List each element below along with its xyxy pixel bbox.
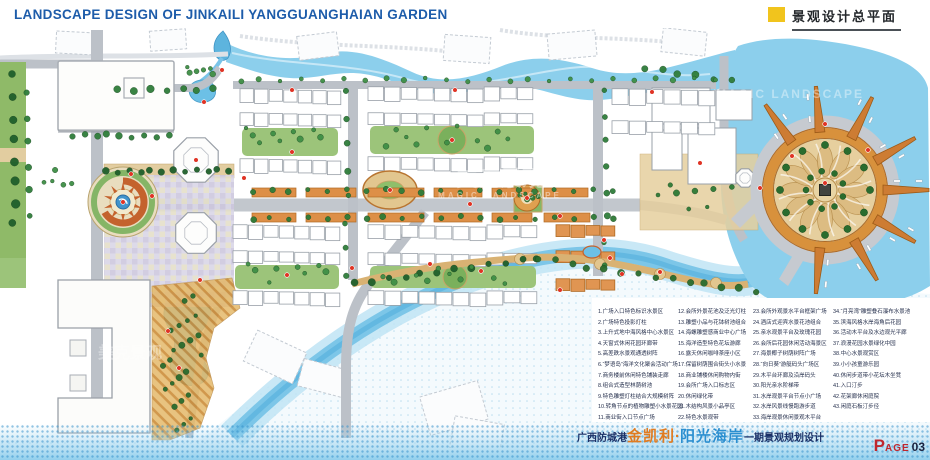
legend-item: 10.转角节点的植物雕塑小水景花园 [598,402,678,413]
legend-item: 27.海景椰子树荫树阵广场 [753,349,833,360]
legend-item: 25.亲水观景平台及玫瑰花园 [753,328,833,339]
legend-item: 29.木平台环廊及沿岸码头 [753,371,833,382]
yellow-accent-square-icon [768,7,785,22]
legend-item: 24.酒店式迎宾水景花池组合 [753,318,833,329]
legend-item: 3.上升式地中海风格中心水景区 [598,328,678,339]
project-location: 广西防城港 [577,429,627,444]
legend-column-2: 12.会所外景花池及泛光灯柱13.雕塑小品与花钵树池组合14.海螺雕塑感商业中心… [678,307,753,424]
legend-item: 31.水岸观景平台节点小广场 [753,392,833,403]
legend-item: 30.阳光亲水阶梯带 [753,381,833,392]
page-word-initial: P [874,436,885,456]
svg-text:MAGIC LANDSCAPE: MAGIC LANDSCAPE [716,87,864,101]
legend-item: 42.花架廊休闲庭院 [833,392,928,403]
legend-item: 40.休闲步道带小花坛木坐凳 [833,371,928,382]
legend-item: 23.会所外观景水平台框架广场 [753,307,833,318]
legend-column-4: 34.“月亮湾”雕塑叠石瀑布水景池35.滨海风格水岸海角后花园36.活动木平台及… [833,307,928,413]
legend-item: 37.浪漫花园水景绿化中园 [833,339,928,350]
legend-item: 15.海洋造型特色花坛游廊 [678,339,753,350]
legend-item: 2.广场特色投影灯柱 [598,318,678,329]
legend-item: 36.活动木平台及水边观光平廊 [833,328,928,339]
legend-column-1: 1.广场入口特色标识水景区2.广场特色投影灯柱3.上升式地中海风格中心水景区4.… [598,307,678,424]
legend-item: 22.特色水景观带 [678,413,753,424]
legend-item: 16.露天休闲咖啡茶座小区 [678,349,753,360]
legend-item: 35.滨海风格水岸海角后花园 [833,318,928,329]
legend-item: 34.“月亮湾”雕塑叠石瀑布水景池 [833,307,928,318]
legend-item: 20.休闲绿化带 [678,392,753,403]
svg-text:美克景观: 美克景观 [456,166,544,191]
legend-column-3: 23.会所外观景水平台框架广场24.酒店式迎宾水景花池组合25.亲水观景平台及玫… [753,307,833,424]
page-number: P AGE 03 [874,436,925,456]
legend-item: 21.木结构风景小品亭区 [678,402,753,413]
svg-text:美克景观: 美克景观 [98,343,162,362]
page-number-value: 03 [912,440,925,454]
legend-item: 39.小小孩童游乐园 [833,360,928,371]
legend-item: 41.入口汀步 [833,381,928,392]
legend-item: 17.保留树荫围合街头小水景 [678,360,753,371]
legend-item: 26.会所后花园休闲活动海景区 [753,339,833,350]
legend-item: 33.海岸观景休闲景观木平台 [753,413,833,424]
legend-item: 28.“向日葵”游艇码头广场区 [753,360,833,371]
legend-item: 18.商业铺楼休闲购物内街 [678,371,753,382]
legend-item: 7.商务楼前休闲特色铺装走廊 [598,371,678,382]
legend-item: 9.特色雕塑灯柱结合大规模树阵 [598,392,678,403]
legend-item: 6.“梦语岛”海洋文化聚会活动广场 [598,360,678,371]
legend-item: 1.广场入口特色标识水景区 [598,307,678,318]
presentation-board: LANDSCAPE DESIGN OF JINKAILI YANGGUANGHA… [0,0,930,460]
legend-item: 4.天窗式休闲花园环廊带 [598,339,678,350]
legend-item: 43.闲庭石板汀步径 [833,402,928,413]
plan-legend: 1.广场入口特色标识水景区2.广场特色投影灯柱3.上升式地中海风格中心水景区4.… [592,298,930,422]
project-phase: 一期景观规划设计 [744,429,824,444]
project-brand: 金凯利 [627,425,675,446]
legend-item: 38.中心水景观赏区 [833,349,928,360]
page-title: LANDSCAPE DESIGN OF JINKAILI YANGGUANGHA… [14,7,448,22]
legend-item: 14.海螺雕塑感商业中心广场 [678,328,753,339]
legend-item: 12.会所外景花池及泛光灯柱 [678,307,753,318]
legend-item: 5.高差跌水景观通透树阵 [598,349,678,360]
project-name: 阳光海岸 [680,425,744,446]
legend-item: 32.水岸风景线慢跑游步道 [753,402,833,413]
legend-item: 13.雕塑小品与花钵树池组合 [678,318,753,329]
project-title: 广西防城港 金凯利 · 阳光海岸 一期景观规划设计 [577,425,824,446]
legend-item: 8.组合式造型林荫树池 [598,381,678,392]
svg-text:MAGIC LANDSCAPE: MAGIC LANDSCAPE [438,191,562,200]
legend-item: 19.会所广场入口标志区 [678,381,753,392]
legend-item: 11.商业街入口节点广场 [598,413,678,424]
page-word-rest: AGE [885,443,910,454]
